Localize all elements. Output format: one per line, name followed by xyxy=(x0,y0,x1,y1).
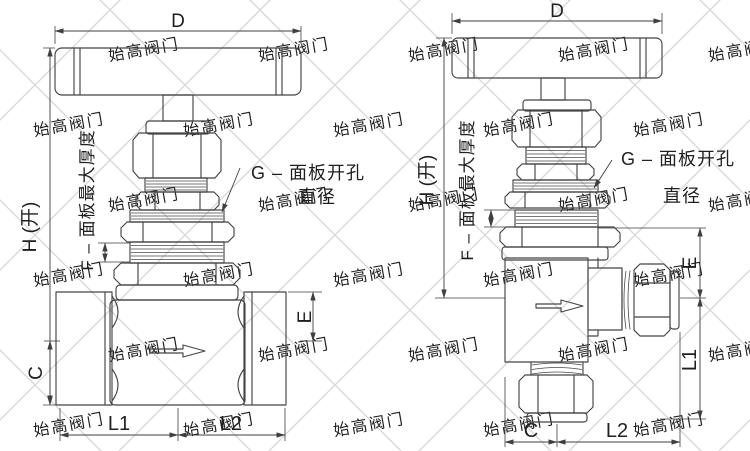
dim-label-E: E xyxy=(680,257,701,270)
dim-label-L1: L1 xyxy=(679,349,701,371)
dim-label-F: F – 面板最大厚度 xyxy=(458,119,477,260)
dim-label-F: F – 面板最大厚度 xyxy=(78,129,97,270)
dim-label-C: C xyxy=(26,366,47,380)
dim-label-L2: L2 xyxy=(220,413,242,435)
dim-label-L1: L1 xyxy=(108,413,130,435)
dim-label-C: C xyxy=(524,420,538,442)
dim-label-G-line1: G – 面板开孔 xyxy=(621,149,735,169)
panel-thickness-thread-section xyxy=(130,242,224,263)
dim-label-G-line1: G – 面板开孔 xyxy=(251,163,365,183)
valve-technical-drawing: 始高阀门始高阀门始高阀门始高阀门始高阀门始高阀门始高阀门始高阀门始高阀门始高阀门… xyxy=(0,0,750,451)
dim-label-E: E xyxy=(295,311,316,324)
valve-drawing-page: 始高阀门始高阀门始高阀门始高阀门始高阀门始高阀门始高阀门始高阀门始高阀门始高阀门… xyxy=(0,0,750,451)
dim-label-G-line2: 直径 xyxy=(298,187,336,207)
dim-label-H: H (开) xyxy=(417,155,438,206)
dim-label-L2: L2 xyxy=(606,420,628,442)
dim-label-H: H (开) xyxy=(20,202,41,253)
dim-label-D: D xyxy=(550,1,564,22)
dim-label-D: D xyxy=(171,11,185,32)
dim-label-G-line2: 直径 xyxy=(663,186,701,206)
